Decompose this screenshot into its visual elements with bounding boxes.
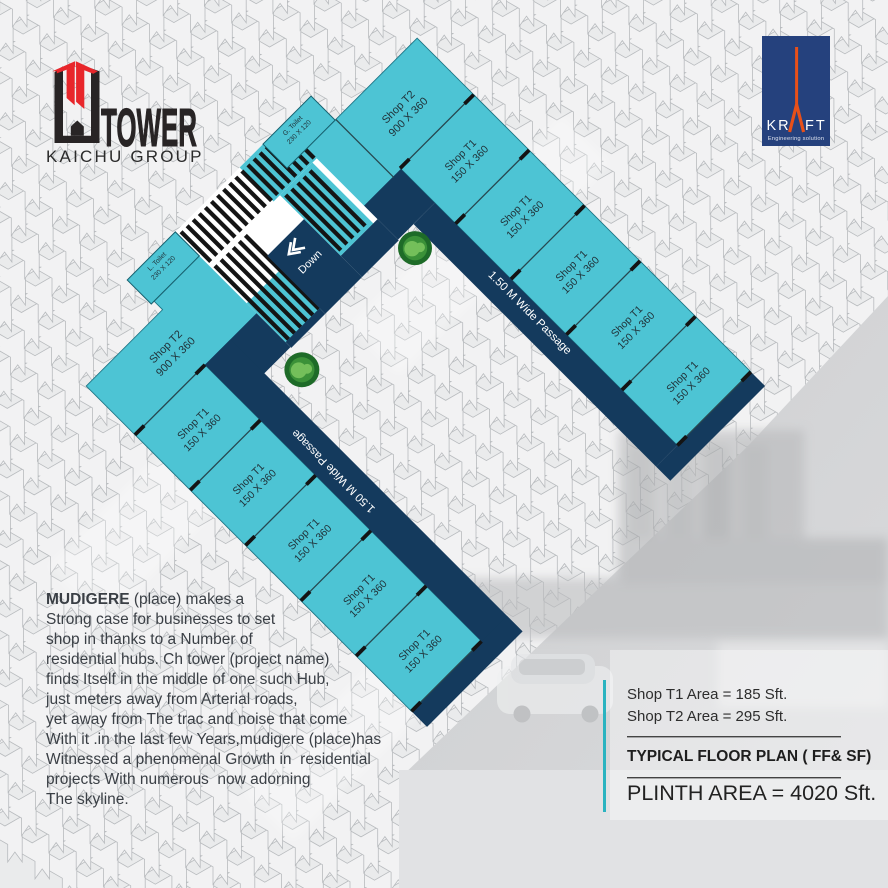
- svg-text:Witnessed a phenomenal Growth: Witnessed a phenomenal Growth in residen…: [46, 751, 371, 768]
- svg-text:Engineering solution: Engineering solution: [768, 136, 825, 142]
- svg-text:With it .in the last few Years: With it .in the last few Years,mudigere …: [46, 731, 381, 748]
- svg-text:FT: FT: [805, 118, 827, 134]
- svg-text:yet away from The trac and noi: yet away from The trac and noise that co…: [46, 711, 347, 728]
- svg-text:Shop T1 Area = 185 Sft.: Shop T1 Area = 185 Sft.: [627, 686, 787, 703]
- svg-text:TYPICAL FLOOR PLAN ( FF& SF): TYPICAL FLOOR PLAN ( FF& SF): [627, 748, 871, 765]
- svg-text:just meters away from Arterial: just meters away from Arterial roads,: [45, 691, 298, 708]
- svg-text:finds Itself in the middle of: finds Itself in the middle of one such H…: [46, 671, 329, 688]
- svg-text:shop in thanks to a Number of: shop in thanks to a Number of: [46, 631, 253, 648]
- svg-text:projects With numerous now ad: projects With numerous now adorning: [46, 771, 311, 788]
- svg-text:MUDIGERE (place) makes a: MUDIGERE (place) makes a: [46, 591, 244, 608]
- svg-text:KR: KR: [767, 118, 791, 134]
- svg-text:residential hubs. Ch tower (pr: residential hubs. Ch tower (project name…: [46, 651, 329, 668]
- svg-text:Strong case for businesses to: Strong case for businesses to set: [46, 611, 276, 628]
- svg-text:Shop T2 Area = 295 Sft.: Shop T2 Area = 295 Sft.: [627, 708, 787, 725]
- svg-text:PLINTH AREA = 4020 Sft.: PLINTH AREA = 4020 Sft.: [627, 781, 876, 805]
- svg-text:KAICHU GROUP: KAICHU GROUP: [46, 147, 204, 166]
- svg-text:The skyline.: The skyline.: [46, 791, 129, 808]
